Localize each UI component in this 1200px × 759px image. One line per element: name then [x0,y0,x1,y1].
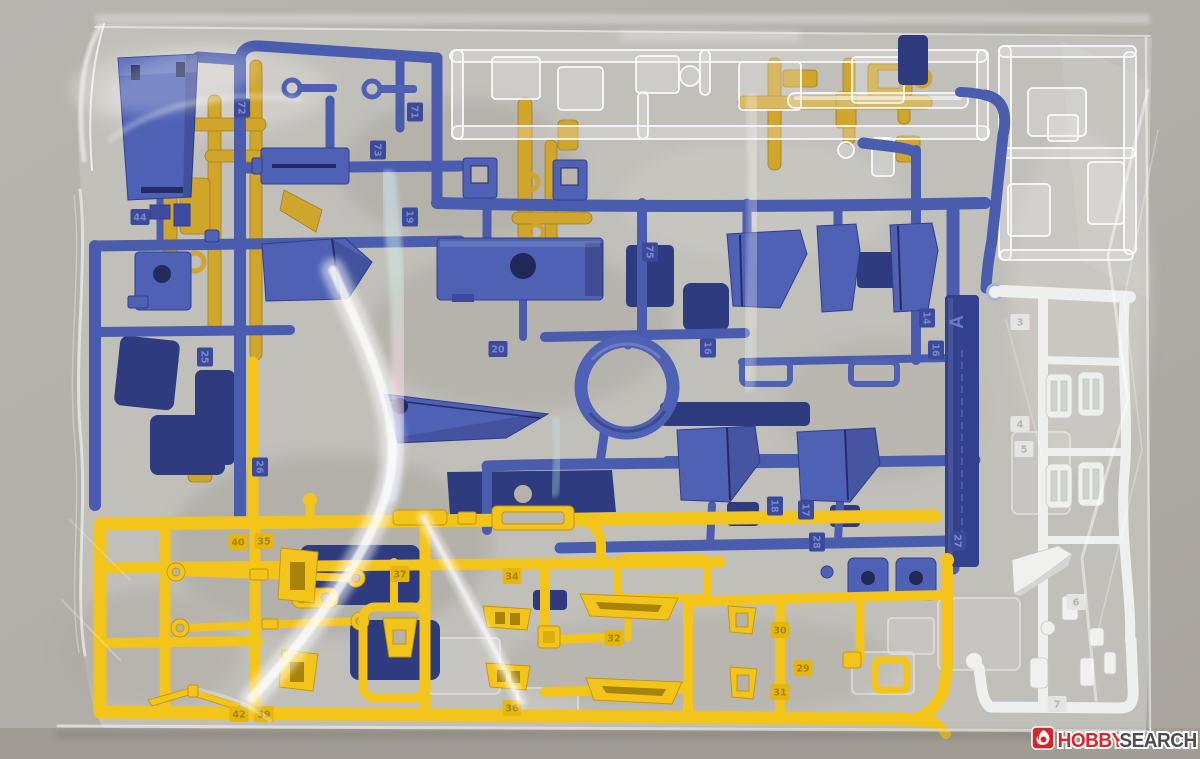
part-number-tag: 32 [605,630,624,646]
clear-part [1008,184,1050,236]
part-number-tag: 18 [767,497,783,516]
part-number-tag: 44 [131,209,150,225]
clear-part [492,57,540,99]
svg-text:16: 16 [702,341,713,355]
svg-text:75: 75 [644,245,655,258]
photo-canvas: A [0,0,1200,759]
part-number-tag: 16 [700,339,716,358]
svg-text:30: 30 [773,626,787,637]
part-number-tag: 17 [798,501,814,520]
svg-text:16: 16 [930,343,941,357]
svg-text:4: 4 [1017,420,1024,431]
clear-tube-part [788,93,968,108]
watermark-brand-second: SEARCH [1119,730,1196,753]
runner-letter-marking: A [947,315,968,329]
blue-box-part-large [437,238,603,302]
svg-text:42: 42 [232,710,245,721]
part-number-tag: 42 [230,706,249,722]
part-number-tag: 75 [642,243,658,262]
part-number-tag: 14 [919,309,935,328]
svg-text:19: 19 [404,210,415,223]
svg-text:5: 5 [1021,445,1028,456]
blue-runner-label-tab: A [945,295,979,567]
svg-text:3: 3 [1017,318,1024,329]
part-number-tag: 19 [402,208,418,227]
svg-text:28: 28 [811,535,822,549]
part-number-tag: 4 [1011,416,1030,432]
clear-part [558,67,603,110]
part-number-tag: 71 [407,103,423,122]
clear-part [636,56,679,93]
svg-text:37: 37 [393,570,406,581]
svg-text:72: 72 [236,101,247,114]
part-number-tag: 40 [229,534,248,550]
photo-of-model-kit-runners: A [0,0,1200,759]
svg-text:44: 44 [133,213,147,224]
svg-text:71: 71 [409,105,420,118]
svg-text:20: 20 [491,345,505,356]
part-number-tag: 34 [503,568,522,584]
svg-text:6: 6 [1073,598,1080,609]
yellow-rim-bar-part [492,506,574,530]
part-number-tag: 3 [1011,314,1030,330]
part-number-tag: 20 [489,341,508,357]
svg-text:32: 32 [607,634,620,645]
part-number-tag: 31 [771,684,790,700]
svg-text:73: 73 [372,143,383,156]
part-number-tag: 16 [928,341,944,360]
part-number-tag: 30 [771,622,790,638]
svg-text:17: 17 [800,503,811,516]
part-number-tag: 27 [950,532,966,551]
part-number-tag: 35 [255,533,274,549]
svg-text:18: 18 [769,499,780,513]
part-number-tag: 25 [197,348,213,367]
yellow-stand-part [383,618,417,657]
svg-text:7: 7 [1054,700,1061,711]
svg-text:27: 27 [952,534,963,547]
flame-icon [1032,727,1054,749]
part-number-tag: 28 [809,533,825,552]
svg-text:40: 40 [231,538,245,549]
part-number-tag: 73 [370,141,386,160]
svg-text:25: 25 [199,350,210,363]
part-number-tag: 37 [391,566,410,582]
svg-text:34: 34 [505,572,519,583]
watermark-brand-first: HOBBY [1058,730,1125,753]
part-number-tag: 5 [1015,441,1034,457]
svg-text:31: 31 [773,688,786,699]
part-number-tag: 72 [234,99,250,118]
blue-slab-part [252,148,349,184]
part-number-tag: 6 [1067,594,1086,610]
svg-text:29: 29 [796,664,809,675]
part-number-tag: 7 [1048,696,1067,712]
svg-text:35: 35 [257,537,270,548]
part-number-tag: 26 [252,458,268,477]
svg-text:14: 14 [921,311,932,325]
blue-box-part-small [128,252,191,310]
part-number-tag: 29 [794,660,813,676]
svg-text:26: 26 [254,460,265,474]
